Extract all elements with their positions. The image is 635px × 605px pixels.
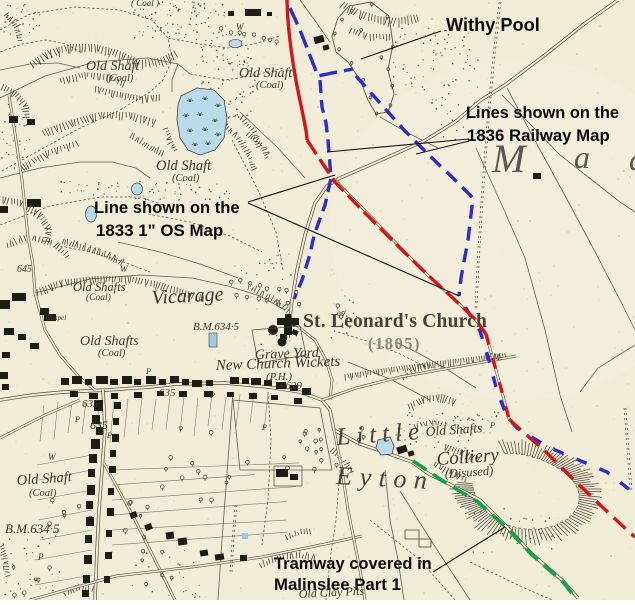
svg-text:Withy Pool: Withy Pool bbox=[446, 15, 540, 35]
svg-text:635: 635 bbox=[82, 398, 99, 410]
svg-text:(Coal): (Coal) bbox=[86, 292, 111, 303]
svg-text:(Coal): (Coal) bbox=[98, 348, 126, 359]
svg-text:( Coal ): ( Coal ) bbox=[131, 0, 159, 8]
svg-text:P: P bbox=[74, 415, 80, 424]
svg-text:645: 645 bbox=[17, 264, 32, 275]
svg-text:+629: +629 bbox=[278, 380, 302, 392]
svg-text:(Coal): (Coal) bbox=[256, 80, 284, 91]
svg-text:Old Shafts: Old Shafts bbox=[73, 280, 126, 294]
svg-text:1833 1" OS Map: 1833 1" OS Map bbox=[96, 221, 223, 240]
svg-text:635: 635 bbox=[159, 387, 176, 399]
svg-text:P: P bbox=[261, 423, 267, 432]
svg-text:B.M.634·5: B.M.634·5 bbox=[193, 321, 240, 333]
svg-text:635: 635 bbox=[90, 418, 108, 432]
svg-text:Malinslee Part 1: Malinslee Part 1 bbox=[274, 575, 401, 594]
svg-text:P: P bbox=[145, 367, 151, 376]
svg-text:Lines shown on the: Lines shown on the bbox=[466, 104, 619, 122]
svg-text:Vicarage: Vicarage bbox=[151, 283, 224, 309]
svg-text:P: P bbox=[209, 391, 215, 400]
svg-text:(1805): (1805) bbox=[368, 334, 421, 353]
svg-text:Line shown on the: Line shown on the bbox=[94, 198, 240, 217]
svg-text:d: d bbox=[629, 141, 635, 177]
svg-text:Old Shafts: Old Shafts bbox=[80, 334, 139, 349]
svg-text:Old Shaft: Old Shaft bbox=[156, 158, 212, 174]
svg-text:Old Shaft: Old Shaft bbox=[86, 59, 140, 74]
svg-text:Chapel: Chapel bbox=[46, 314, 66, 322]
svg-text:St. Leonard's Church: St. Leonard's Church bbox=[303, 311, 487, 332]
svg-text:P: P bbox=[106, 431, 112, 440]
svg-text:P: P bbox=[37, 552, 44, 562]
svg-text:(Coal): (Coal) bbox=[172, 173, 200, 184]
svg-text:B.M.634·5: B.M.634·5 bbox=[5, 521, 60, 536]
svg-text:P: P bbox=[489, 421, 495, 430]
svg-text:Tramway covered in: Tramway covered in bbox=[274, 555, 432, 573]
svg-text:(Coal): (Coal) bbox=[29, 488, 57, 499]
svg-text:(Coal): (Coal) bbox=[106, 73, 134, 84]
svg-text:1836 Railway Map: 1836 Railway Map bbox=[467, 126, 610, 145]
svg-text:Old Shaft: Old Shaft bbox=[239, 66, 293, 81]
